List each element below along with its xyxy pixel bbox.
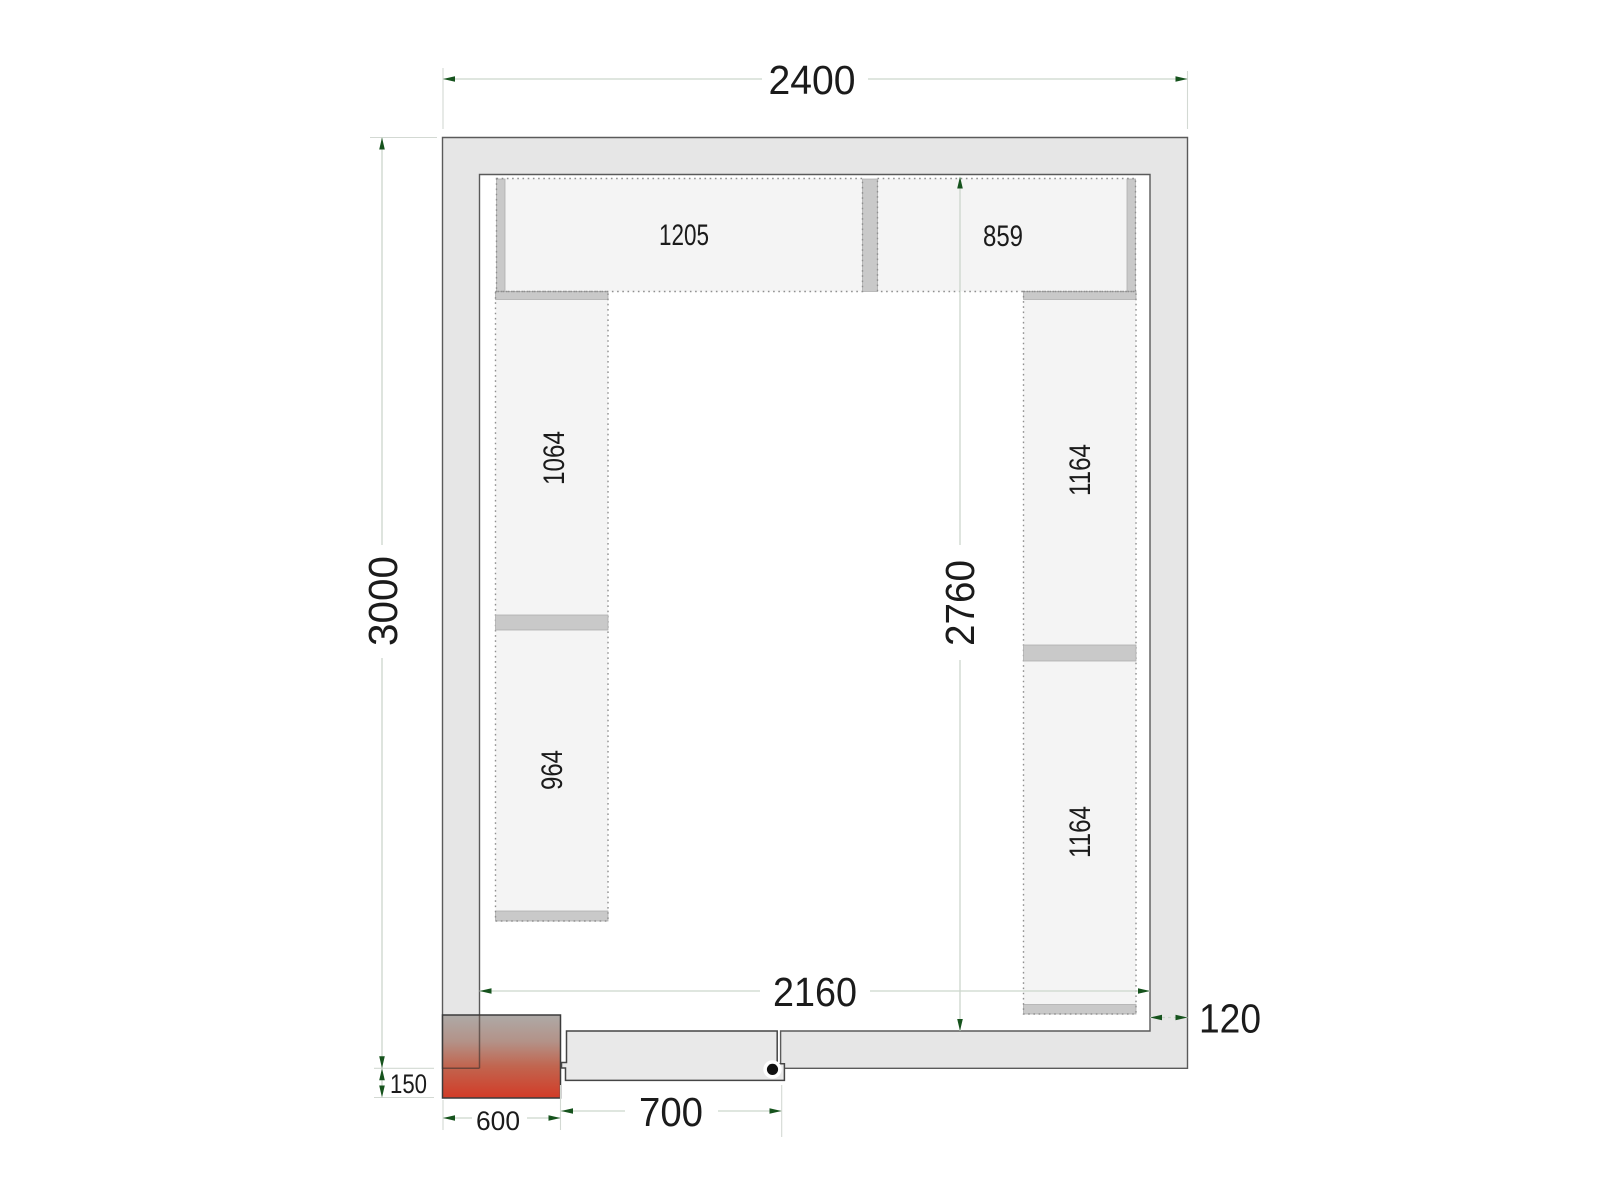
svg-text:964: 964 [536, 750, 569, 790]
svg-text:700: 700 [639, 1089, 703, 1135]
svg-text:120: 120 [1199, 996, 1261, 1042]
svg-text:859: 859 [983, 220, 1023, 253]
svg-text:2760: 2760 [937, 560, 983, 646]
svg-text:2400: 2400 [769, 57, 856, 103]
svg-text:1164: 1164 [1064, 444, 1097, 496]
svg-text:1164: 1164 [1064, 806, 1097, 858]
svg-text:2160: 2160 [773, 969, 857, 1015]
svg-text:1205: 1205 [659, 219, 709, 252]
svg-text:1064: 1064 [538, 431, 571, 485]
svg-text:600: 600 [476, 1106, 520, 1136]
svg-text:150: 150 [390, 1069, 427, 1099]
svg-text:3000: 3000 [360, 556, 406, 646]
